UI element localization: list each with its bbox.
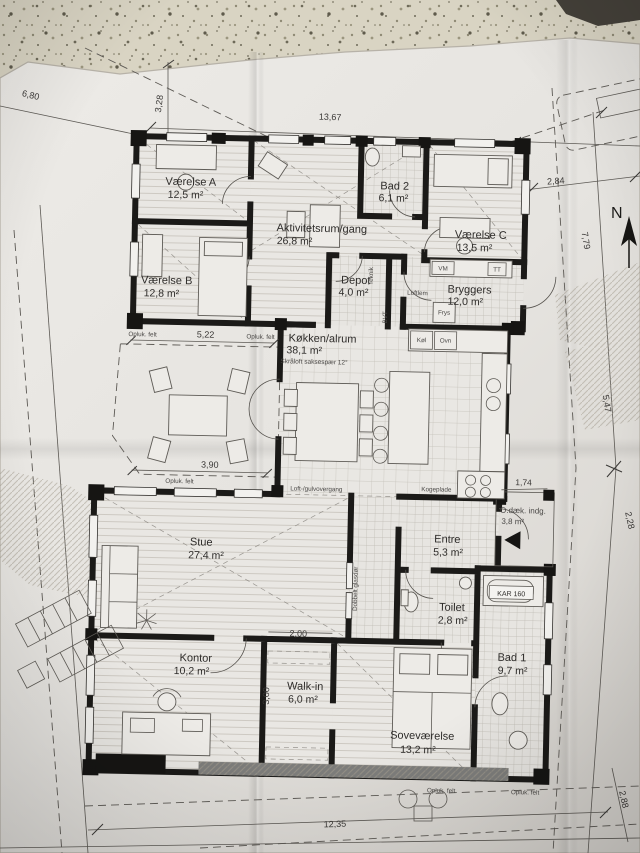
floorplan-photo: Værelse A 12,5 m² Værelse B 12,8 m² Akti… (0, 0, 640, 853)
floorplan-svg: Værelse A 12,5 m² Værelse B 12,8 m² Akti… (0, 0, 640, 853)
photo-vignette (0, 0, 640, 853)
